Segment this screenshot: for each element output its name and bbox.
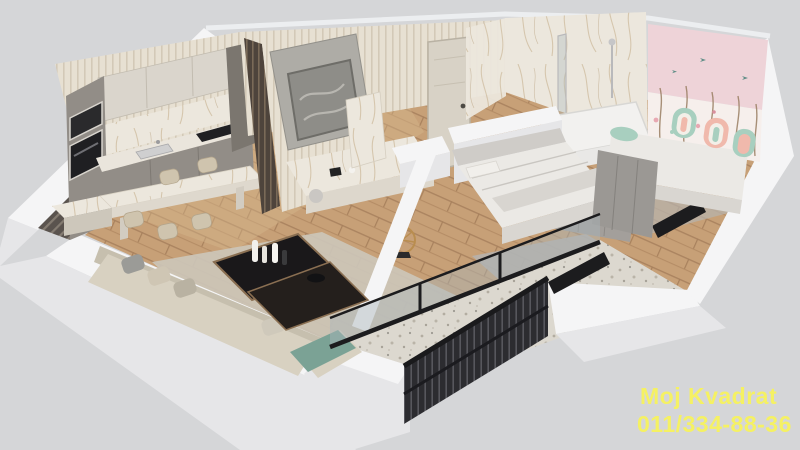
table-leg bbox=[236, 186, 244, 210]
floor-plan-render: Moj Kvadrat 011/334-88-36 bbox=[0, 0, 800, 450]
watermark-line2: 011/334-88-36 bbox=[637, 411, 792, 437]
sphere-lamp bbox=[309, 189, 323, 203]
decor-bowl bbox=[307, 274, 325, 283]
decor-vase-white bbox=[272, 243, 278, 263]
apartment-3d-scene: Moj Kvadrat 011/334-88-36 bbox=[0, 0, 800, 450]
bedroom-wardrobe bbox=[592, 150, 658, 238]
door-handle bbox=[461, 104, 466, 109]
faucet bbox=[156, 140, 160, 144]
decor-vase-white bbox=[252, 240, 258, 262]
watermark-line1: Moj Kvadrat bbox=[640, 383, 777, 409]
decor-vase-dark bbox=[282, 250, 287, 265]
wc-marble-partition bbox=[346, 92, 386, 168]
shower-glass-panel bbox=[558, 34, 566, 126]
shower-head bbox=[609, 39, 616, 46]
decor-vase-white bbox=[262, 246, 267, 263]
